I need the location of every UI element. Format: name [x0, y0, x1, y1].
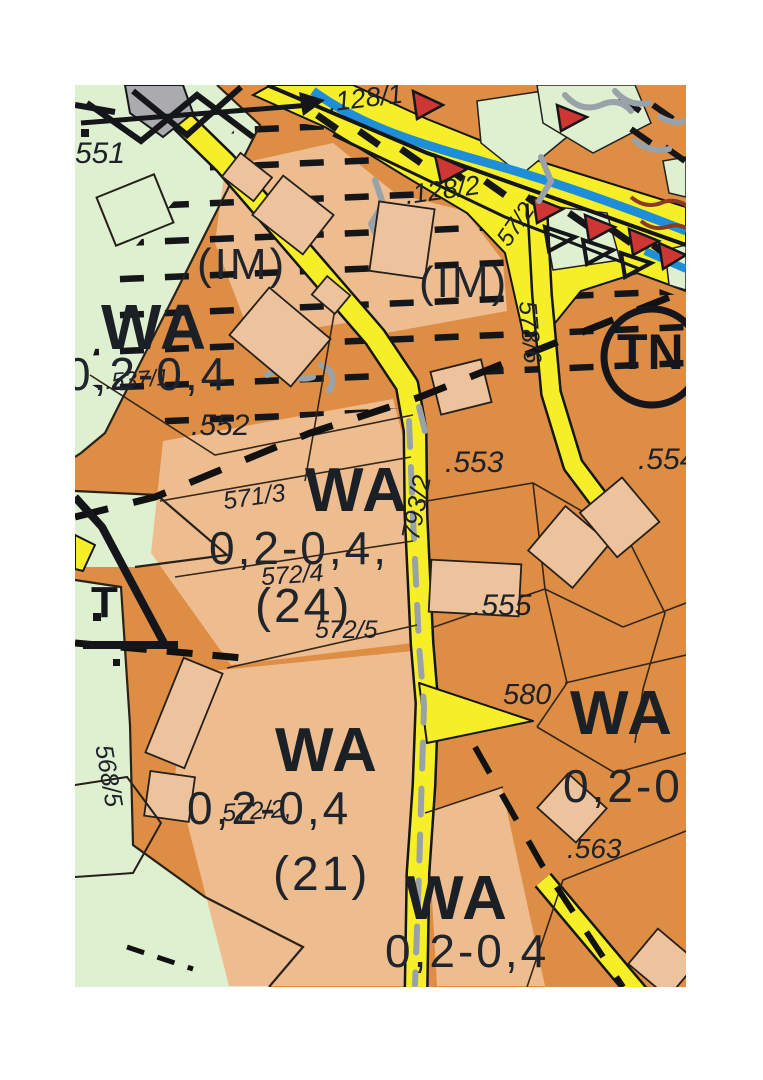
- parcel-label-572-2: 572/2,: [221, 797, 292, 827]
- parcel-label-553: .553: [445, 448, 503, 478]
- parcel-label-554: .554: [638, 445, 686, 475]
- zone-label-wa-center: WA: [305, 460, 409, 522]
- parcel-label-552: .552: [191, 411, 249, 441]
- parcel-label-537-1: .537/1: [104, 366, 169, 393]
- parcel-label-563: .563: [567, 835, 622, 863]
- parcel-label-572-5: 572/5: [315, 618, 378, 643]
- zone-label-wa-bottom-center: WA: [405, 868, 509, 930]
- scanned-page: 551 .128/1 .128/2 57/2 (IM) (IM) WA 0,2-…: [0, 0, 763, 1080]
- tn-label: TN: [617, 327, 684, 377]
- parcel-label-580: 580: [503, 681, 551, 710]
- parcel-label-551: 551: [75, 139, 125, 169]
- zoning-map: 551 .128/1 .128/2 57/2 (IM) (IM) WA 0,2-…: [75, 85, 686, 987]
- transformer-label: T: [91, 581, 118, 625]
- zone-value-right: 0,2-0: [563, 763, 683, 809]
- parcel-label-555: .555: [473, 591, 531, 621]
- zone-label-wa-right: WA: [570, 683, 674, 745]
- zone-label-wa-bottom-left: WA: [275, 720, 379, 782]
- road-label-578-6: 578/6: [514, 300, 544, 365]
- zone-value-bottom-center: 0,2-0,4: [385, 928, 549, 974]
- zone-label-im-top: (IM): [197, 243, 287, 287]
- zone-label-im-right: (IM): [419, 261, 509, 305]
- parcel-label-572-4: 572/4: [260, 561, 324, 590]
- zone-number-bottom-left: (21): [273, 851, 370, 899]
